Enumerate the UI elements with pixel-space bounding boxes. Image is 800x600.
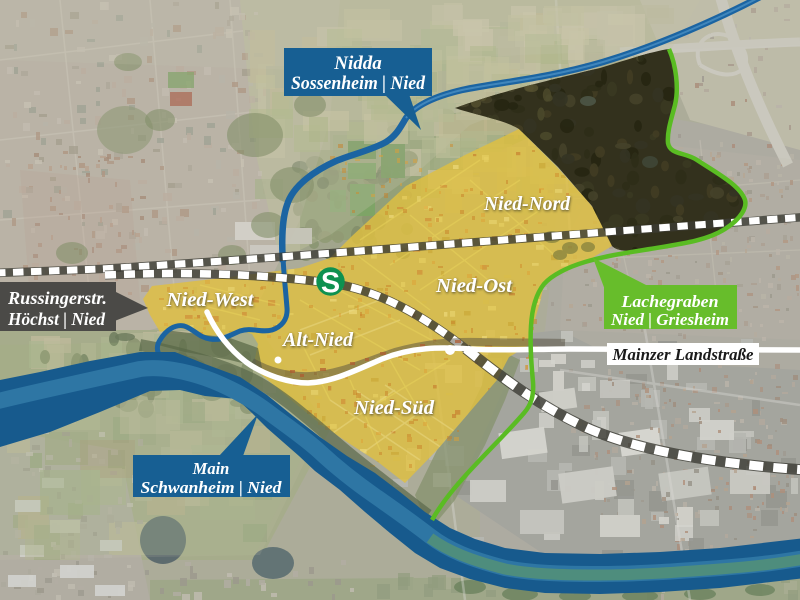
svg-text:Main: Main — [192, 459, 230, 478]
svg-text:Nidda: Nidda — [333, 53, 382, 74]
svg-text:Sossenheim | Nied: Sossenheim | Nied — [291, 73, 425, 94]
svg-text:Mainzer Landstraße: Mainzer Landstraße — [612, 345, 754, 364]
svg-text:Russingerstr.: Russingerstr. — [7, 288, 107, 308]
svg-text:Lachegraben: Lachegraben — [620, 292, 718, 311]
svg-text:Höchst | Nied: Höchst | Nied — [7, 309, 106, 329]
svg-text:Nied-Nord: Nied-Nord — [483, 193, 571, 215]
svg-text:Alt-Nied: Alt-Nied — [281, 329, 354, 351]
svg-text:Schwanheim | Nied: Schwanheim | Nied — [141, 478, 283, 497]
svg-text:Nied | Griesheim: Nied | Griesheim — [610, 310, 729, 329]
svg-text:Nied-West: Nied-West — [165, 289, 255, 311]
svg-text:Nied-Ost: Nied-Ost — [435, 275, 514, 297]
svg-text:Nied-Süd: Nied-Süd — [353, 397, 435, 419]
